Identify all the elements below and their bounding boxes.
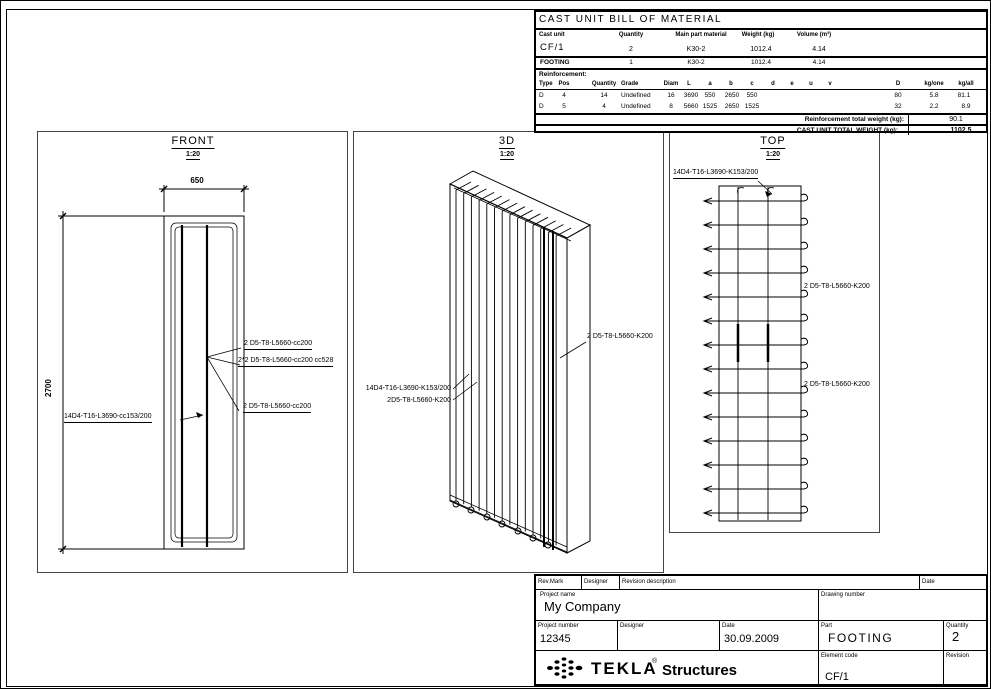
front-view-scale: 1:20 (186, 151, 200, 159)
top-view-title: TOP (760, 135, 785, 147)
reinf-cell: D (539, 103, 544, 110)
reinf-cell: 5 (562, 103, 566, 110)
bom-reinforcement-label: Reinforcement: (539, 71, 587, 78)
reinf-header: a (708, 81, 711, 88)
front-dim-width: 650 (190, 177, 203, 186)
tekla-logo-reg: ® (652, 658, 657, 666)
bom-cell-cast-unit: FOOTING (540, 59, 570, 66)
reinf-cell: Undefined (621, 103, 651, 110)
reinf-cell: 16 (667, 92, 674, 99)
reinf-header: Grade (621, 81, 638, 88)
reinf-header: L (687, 81, 691, 88)
bom-title: CAST UNIT BILL OF MATERIAL (539, 14, 722, 25)
bom-col-header: Main part material (675, 32, 726, 39)
reinf-header: v (828, 81, 831, 88)
reinf-header: c (750, 81, 753, 88)
reinf-cell: 4 (562, 92, 566, 99)
bom-cell: 4.14 (812, 46, 826, 54)
element-code-value: CF/1 (825, 671, 849, 683)
reinf-header: u (809, 81, 813, 88)
rebar-label-3d-right: 2 D5-T8-L5660-K200 (587, 333, 653, 341)
project-name-label: Project name (540, 592, 575, 599)
front-dim-height: 2700 (45, 379, 54, 397)
reinf-header: kg/all (958, 81, 973, 88)
date-value: 30.09.2009 (724, 633, 779, 645)
rebar-label-front-mid: 2*2 D5-T8-L5660-cc200 cc528 (238, 357, 333, 367)
reinf-total-value: 90.1 (949, 116, 963, 124)
reinf-cell: 3690 (684, 92, 698, 99)
cast-unit-total-label: CAST UNIT TOTAL WEIGHT (kg): (797, 127, 898, 134)
date2-label: Date (722, 623, 735, 630)
part-value: FOOTING (828, 632, 893, 645)
reinf-cell: 80 (894, 92, 901, 99)
date-label: Date (922, 579, 935, 586)
reinf-header: b (729, 81, 733, 88)
bom-cell: 1012.4 (751, 59, 771, 66)
bom-col-header: Weight (kg) (742, 32, 775, 39)
reinf-header: d (771, 81, 775, 88)
reinf-cell: 5.8 (929, 92, 938, 99)
revision-description-label: Revision description (622, 579, 676, 586)
3d-view-scale: 1:20 (500, 151, 514, 159)
rebar-label-front-top: 2 D5-T8-L5660-cc200 (244, 340, 312, 350)
project-name-value: My Company (544, 600, 621, 614)
reinf-header: Type (539, 81, 553, 88)
reinf-cell: 14 (600, 92, 607, 99)
project-number-label: Project number (538, 623, 579, 630)
reinf-header: D (896, 81, 900, 88)
reinf-cell: D (539, 92, 544, 99)
reinf-cell: 81.1 (958, 92, 971, 99)
rebar-label-top-main: 14D4-T16-L3690-K153/200 (673, 169, 758, 179)
rebar-label-front-main: 14D4-T16-L3690-cc153/200 (64, 413, 152, 423)
reinf-cell: 8.9 (961, 103, 970, 110)
rebar-label-3d-left1: 14D4-T16-L3690-K153/200 (366, 385, 451, 393)
reinf-cell: 5660 (684, 103, 698, 110)
designer2-label: Designer (620, 623, 644, 630)
bom-cell-cast-unit: CF/1 (540, 43, 565, 53)
reinf-cell: Undefined (621, 92, 651, 99)
top-view-panel (669, 131, 880, 533)
bom-cell: 2 (629, 46, 633, 54)
rev-mark-label: Rev.Mark (538, 579, 563, 586)
revision-label: Revision (946, 653, 969, 660)
bom-cell: 1012.4 (750, 46, 771, 54)
reinf-cell: 32 (894, 103, 901, 110)
reinf-cell: 1525 (703, 103, 717, 110)
reinf-header: kg/one (924, 81, 943, 88)
reinf-cell: 1525 (745, 103, 759, 110)
front-view-title: FRONT (172, 135, 215, 147)
rebar-label-top-right1: 2 D5-T8-L5660-K200 (804, 283, 870, 291)
reinf-cell: 4 (602, 103, 606, 110)
bom-table: CAST UNIT BILL OF MATERIAL Cast unit Qua… (534, 10, 988, 133)
reinf-header: Diam (664, 81, 679, 88)
rebar-label-3d-left2: 2D5-T8-L5660-K200 (387, 397, 451, 405)
rebar-label-top-right2: 2 D5-T8-L5660-K200 (804, 381, 870, 389)
reinf-header: Pos (558, 81, 569, 88)
reinf-cell: 2650 (725, 92, 739, 99)
part-label: Part (821, 623, 832, 630)
cast-unit-total-value: 1102.5 (950, 127, 971, 135)
bom-col-header: Cast unit (539, 32, 565, 39)
reinf-cell: 550 (705, 92, 716, 99)
rebar-label-front-bottom: 2 D5-T8-L5660-cc200 (243, 403, 311, 413)
drawing-number-label: Drawing number (821, 592, 865, 599)
3d-view-title: 3D (499, 135, 515, 147)
tekla-logo-structures: Structures (662, 663, 737, 680)
bom-cell: 4.14 (813, 59, 826, 66)
reinf-total-label: Reinforcement total weight (kg): (805, 116, 904, 123)
tekla-logo-text: TEKLA (591, 660, 658, 679)
bom-cell: K30-2 (687, 46, 706, 54)
title-block: Rev.Mark Designer Revision description D… (534, 574, 988, 686)
reinf-header: Quantity (592, 81, 616, 88)
designer-label: Designer (584, 579, 608, 586)
element-code-label: Element code (821, 653, 858, 660)
reinf-cell: 550 (747, 92, 758, 99)
bom-col-header: Volume (m³) (797, 32, 831, 39)
reinf-cell: 2650 (725, 103, 739, 110)
front-view-panel (37, 131, 348, 573)
bom-cell: K30-2 (687, 59, 704, 66)
bom-col-header: Quantity (619, 32, 643, 39)
project-number-value: 12345 (540, 633, 571, 645)
quantity-value: 2 (952, 630, 959, 644)
drawing-sheet: FRONT 1:20 650 2700 2 D5-T8-L5660-cc200 … (0, 0, 991, 689)
reinf-cell: 2.2 (929, 103, 938, 110)
tekla-logo-icon (546, 656, 584, 680)
reinf-header: e (790, 81, 793, 88)
reinf-cell: 8 (669, 103, 673, 110)
bom-cell: 1 (629, 59, 633, 66)
3d-view-panel (353, 131, 664, 573)
top-view-scale: 1:20 (766, 151, 780, 159)
